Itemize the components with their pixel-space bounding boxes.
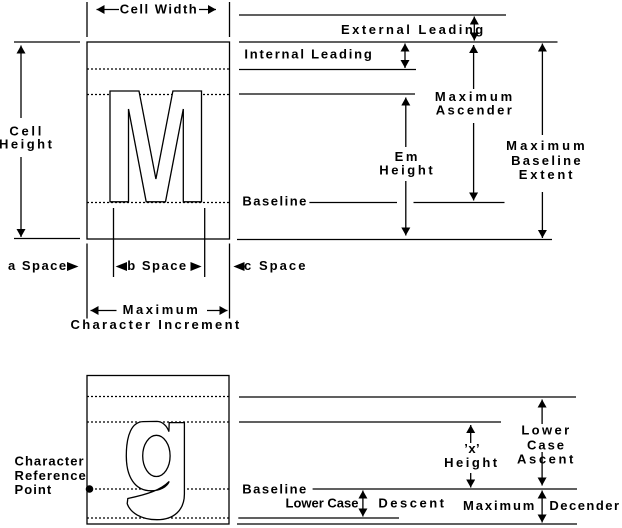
svg-text:’x’: ’x’	[464, 441, 480, 456]
svg-text:a Space: a Space	[8, 258, 68, 273]
svg-text:c Space: c Space	[244, 258, 308, 273]
svg-text:Height: Height	[444, 455, 499, 470]
svg-text:Decender: Decender	[549, 498, 620, 513]
svg-text:Height: Height	[0, 136, 54, 151]
svg-text:Case: Case	[527, 437, 566, 452]
svg-text:Baseline: Baseline	[511, 153, 583, 168]
svg-text:Character Increment: Character Increment	[70, 317, 241, 332]
svg-text:Maximum: Maximum	[506, 138, 588, 153]
svg-text:b Space: b Space	[127, 258, 187, 273]
svg-text:Character: Character	[15, 454, 85, 469]
svg-text:Ascent: Ascent	[517, 451, 576, 466]
svg-text:External Leading: External Leading	[341, 22, 486, 37]
svg-text:Cell Width: Cell Width	[120, 2, 198, 17]
svg-text:Lower: Lower	[521, 423, 571, 438]
svg-text:Baseline: Baseline	[242, 194, 307, 209]
svg-text:Height: Height	[379, 163, 435, 178]
svg-text:Point: Point	[15, 482, 53, 497]
svg-text:Internal Leading: Internal Leading	[244, 47, 373, 62]
svg-text:Maximum: Maximum	[123, 302, 201, 317]
svg-text:Reference: Reference	[15, 468, 87, 483]
svg-text:Ascender: Ascender	[436, 103, 514, 118]
svg-text:Descent: Descent	[378, 496, 446, 511]
svg-text:Maximum: Maximum	[463, 498, 536, 513]
svg-text:Lower Case: Lower Case	[286, 496, 359, 511]
svg-text:Extent: Extent	[519, 167, 576, 182]
svg-text:Baseline: Baseline	[242, 482, 307, 497]
